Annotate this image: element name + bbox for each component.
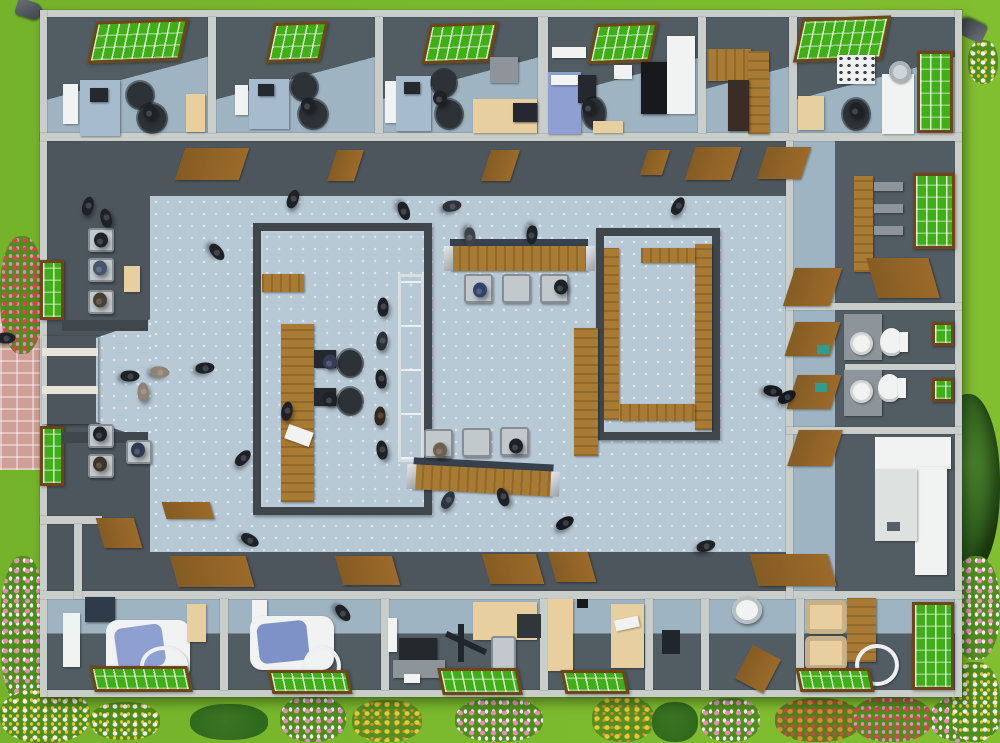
person-figure [138, 383, 149, 402]
person-figure [80, 195, 96, 216]
person-figure [150, 366, 170, 379]
person-figure [143, 105, 157, 120]
person-figure [94, 233, 108, 248]
person-figure [232, 447, 253, 468]
person-figure [93, 261, 107, 276]
person-figure [509, 439, 523, 454]
person-figure [301, 98, 315, 113]
person-figure [285, 188, 302, 210]
person-figure [442, 199, 463, 213]
person-figure [374, 406, 386, 426]
person-figure [554, 280, 568, 295]
person-figure [323, 392, 337, 407]
person-figure [554, 513, 576, 532]
person-figure [526, 225, 539, 245]
person-figure [280, 401, 294, 422]
person-figure [396, 200, 413, 222]
person-figure [473, 283, 487, 298]
person-figure [433, 443, 447, 458]
person-figure [375, 440, 389, 460]
person-figure [438, 489, 457, 511]
person-figure [0, 333, 16, 344]
person-figure [582, 100, 596, 115]
person-figure [378, 298, 389, 317]
floor-plan-scene [0, 0, 1000, 743]
person-figure [333, 602, 354, 624]
person-figure [131, 443, 145, 458]
person-figure [93, 427, 107, 442]
person-figure [375, 331, 389, 351]
person-figure [195, 362, 215, 375]
person-figure [495, 486, 512, 508]
person-figure [668, 195, 687, 217]
person-figure [464, 227, 477, 247]
person-figure [93, 293, 107, 308]
person-figure [695, 538, 716, 554]
people-layer [0, 0, 1000, 743]
person-figure [375, 369, 388, 389]
person-figure [323, 355, 337, 370]
person-figure [433, 91, 447, 106]
person-figure [239, 530, 261, 549]
person-figure [207, 241, 228, 263]
person-figure [849, 103, 863, 118]
person-figure [99, 208, 114, 229]
person-figure [121, 371, 140, 382]
person-figure [93, 457, 107, 472]
